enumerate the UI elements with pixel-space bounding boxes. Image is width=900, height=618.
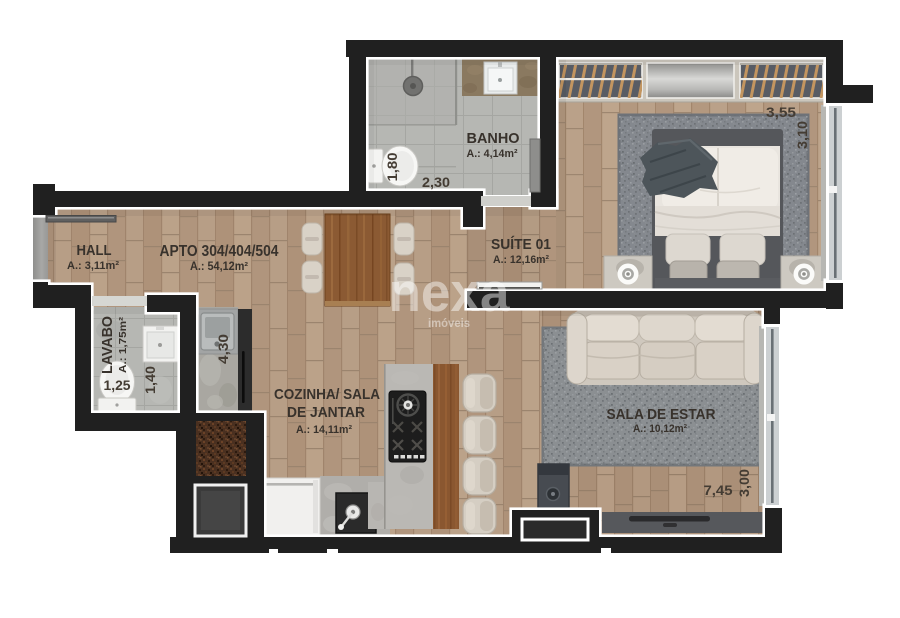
svg-text:A.: 4,14m²: A.: 4,14m² [467,148,518,160]
svg-text:LAVABO: LAVABO [100,316,116,374]
svg-text:HALL: HALL [77,242,112,259]
svg-text:A.: 10,12m²: A.: 10,12m² [633,423,687,435]
svg-text:SUÍTE 01: SUÍTE 01 [491,236,551,253]
svg-text:3,10: 3,10 [795,121,810,149]
svg-text:BANHO: BANHO [467,130,520,147]
svg-text:nexa: nexa [389,261,510,323]
svg-text:A.: 14,11m²: A.: 14,11m² [296,424,352,436]
svg-text:1,80: 1,80 [385,153,400,182]
svg-text:A.: 54,12m²: A.: 54,12m² [190,261,248,273]
svg-text:APTO 304/404/504: APTO 304/404/504 [160,243,279,260]
svg-text:2,30: 2,30 [422,175,450,190]
svg-text:DE JANTAR: DE JANTAR [287,404,365,421]
svg-text:1,40: 1,40 [143,366,158,394]
svg-text:3,55: 3,55 [766,105,797,120]
svg-text:4,30: 4,30 [216,334,231,364]
svg-text:1,25: 1,25 [104,378,131,393]
svg-text:A.: 1,75m²: A.: 1,75m² [118,316,129,373]
svg-text:7,45: 7,45 [704,483,734,498]
svg-text:SALA DE ESTAR: SALA DE ESTAR [607,407,716,423]
svg-text:3,00: 3,00 [737,469,752,497]
svg-text:COZINHA/ SALA: COZINHA/ SALA [274,386,380,403]
svg-text:imóveis: imóveis [428,316,470,330]
svg-text:A.: 3,11m²: A.: 3,11m² [67,260,119,272]
